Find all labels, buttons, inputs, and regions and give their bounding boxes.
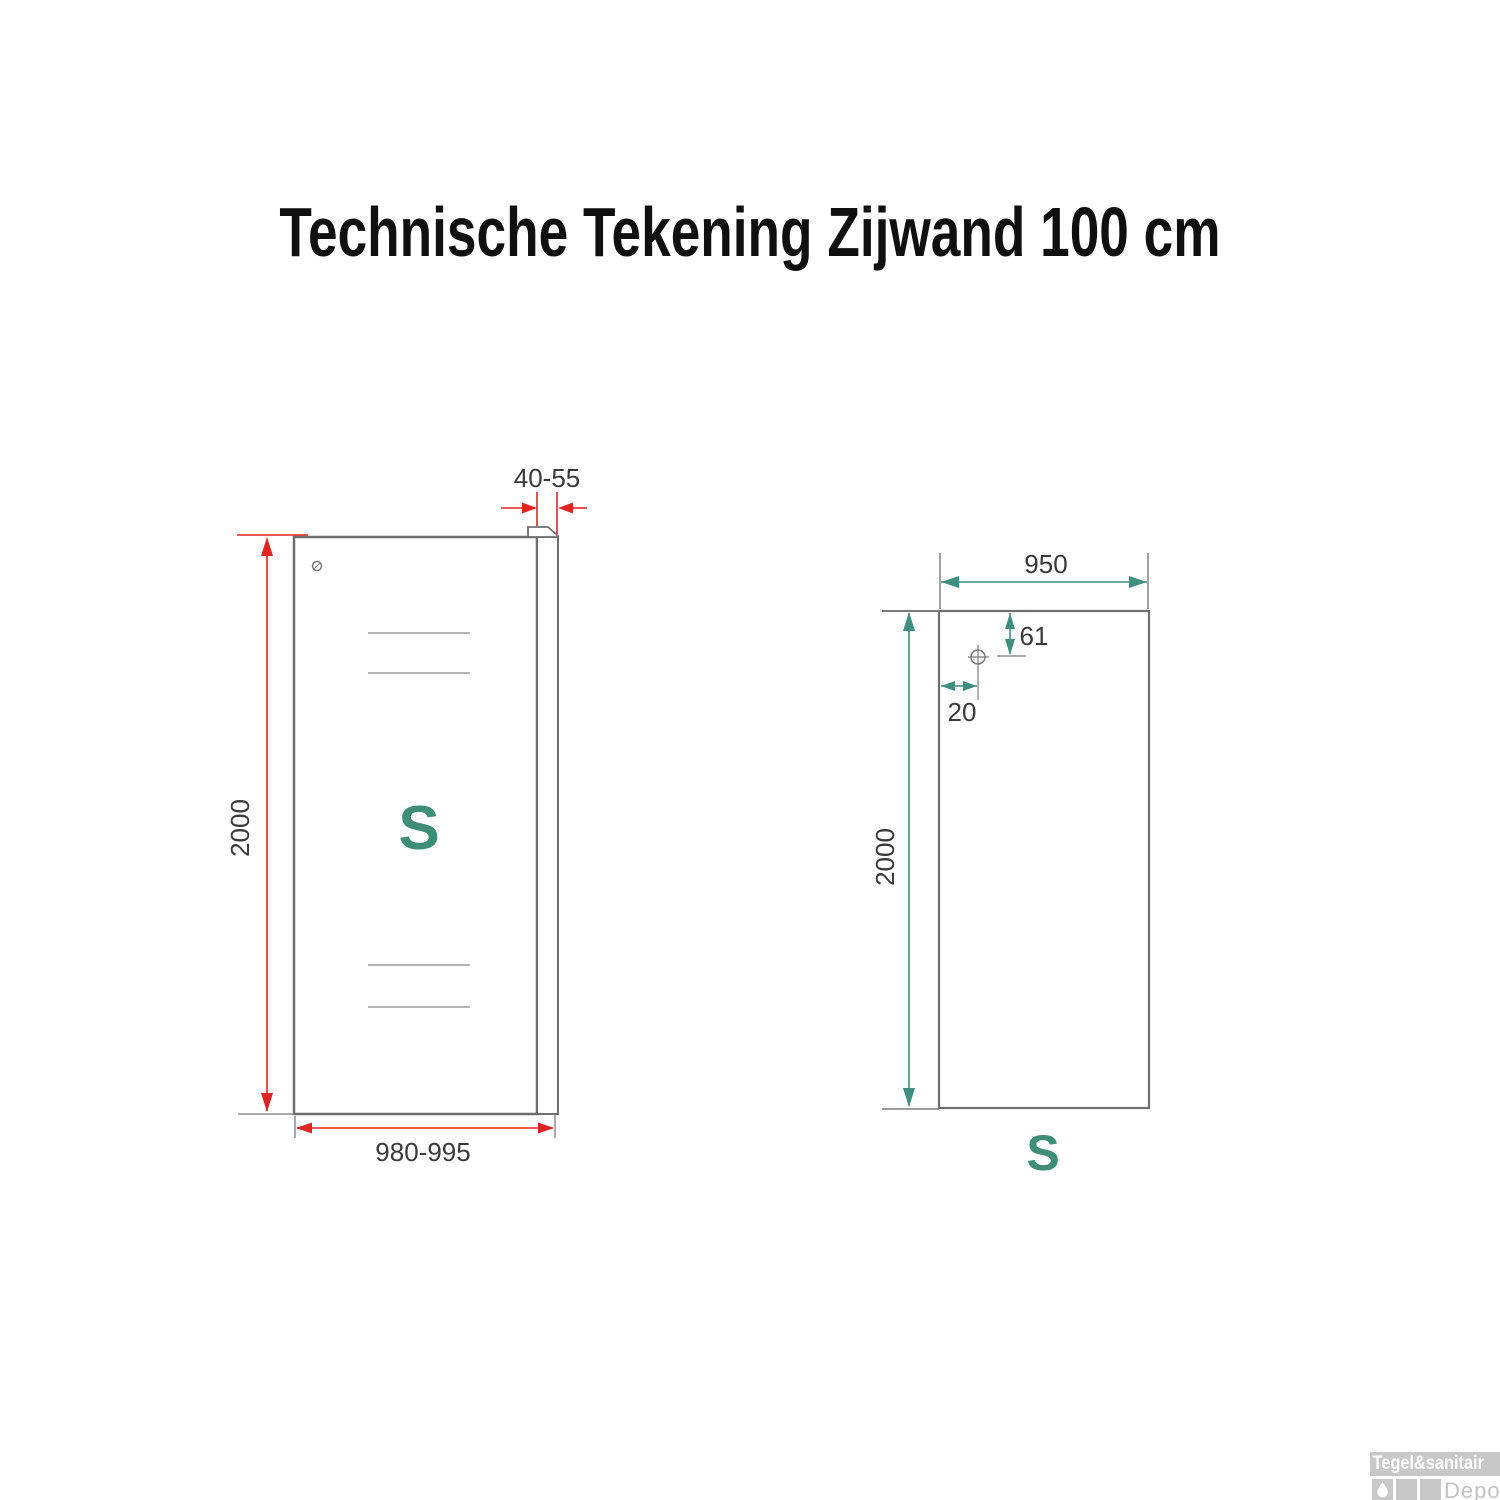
- front-height-arrow-down: [261, 1093, 273, 1112]
- technical-drawing-svg: 40-55 2000 980-995 S: [0, 0, 1500, 1500]
- wall-profile-cap: [528, 527, 558, 537]
- glass-view: 950 2000 61 20 S: [870, 549, 1149, 1181]
- logo-square-drop: [1372, 1479, 1393, 1500]
- glass-marking-front: S: [398, 794, 439, 863]
- brand-sub: Depot: [1444, 1478, 1500, 1500]
- profile-width-arrow-right: [558, 503, 573, 514]
- logo-square: [1396, 1479, 1417, 1500]
- hole-side-offset-label: 20: [948, 697, 977, 727]
- logo-square: [1420, 1479, 1441, 1500]
- profile-width-arrow-left: [522, 503, 537, 514]
- front-view: 40-55 2000 980-995 S: [225, 463, 587, 1167]
- glass-height-arrow-up: [903, 612, 915, 631]
- wall-profile-bar: [537, 537, 558, 1114]
- glass-height-arrow-down: [903, 1088, 915, 1107]
- front-height-arrow-up: [261, 537, 273, 556]
- profile-width-label: 40-55: [514, 463, 581, 493]
- glass-height-label: 2000: [870, 828, 900, 886]
- front-width-arrow-right: [538, 1123, 554, 1134]
- glass-width-arrow-right: [1129, 576, 1147, 588]
- brand-logo: Tegel&sanitair Depot: [1370, 1452, 1500, 1500]
- glass-marking-rear: S: [1026, 1125, 1059, 1181]
- front-height-label: 2000: [225, 799, 255, 857]
- logo-squares: [1372, 1479, 1441, 1500]
- brand-name: Tegel&sanitair: [1370, 1452, 1484, 1476]
- technical-drawing-page: Technische Tekening Zijwand 100 cm: [0, 0, 1500, 1500]
- glass-width-arrow-left: [941, 576, 959, 588]
- front-width-arrow-left: [296, 1123, 312, 1134]
- front-width-label: 980-995: [375, 1137, 470, 1167]
- brand-bar: Tegel&sanitair: [1370, 1452, 1500, 1476]
- hole-top-offset-label: 61: [1020, 621, 1049, 651]
- glass-width-label: 950: [1024, 549, 1067, 579]
- water-drop-icon: [1375, 1481, 1390, 1498]
